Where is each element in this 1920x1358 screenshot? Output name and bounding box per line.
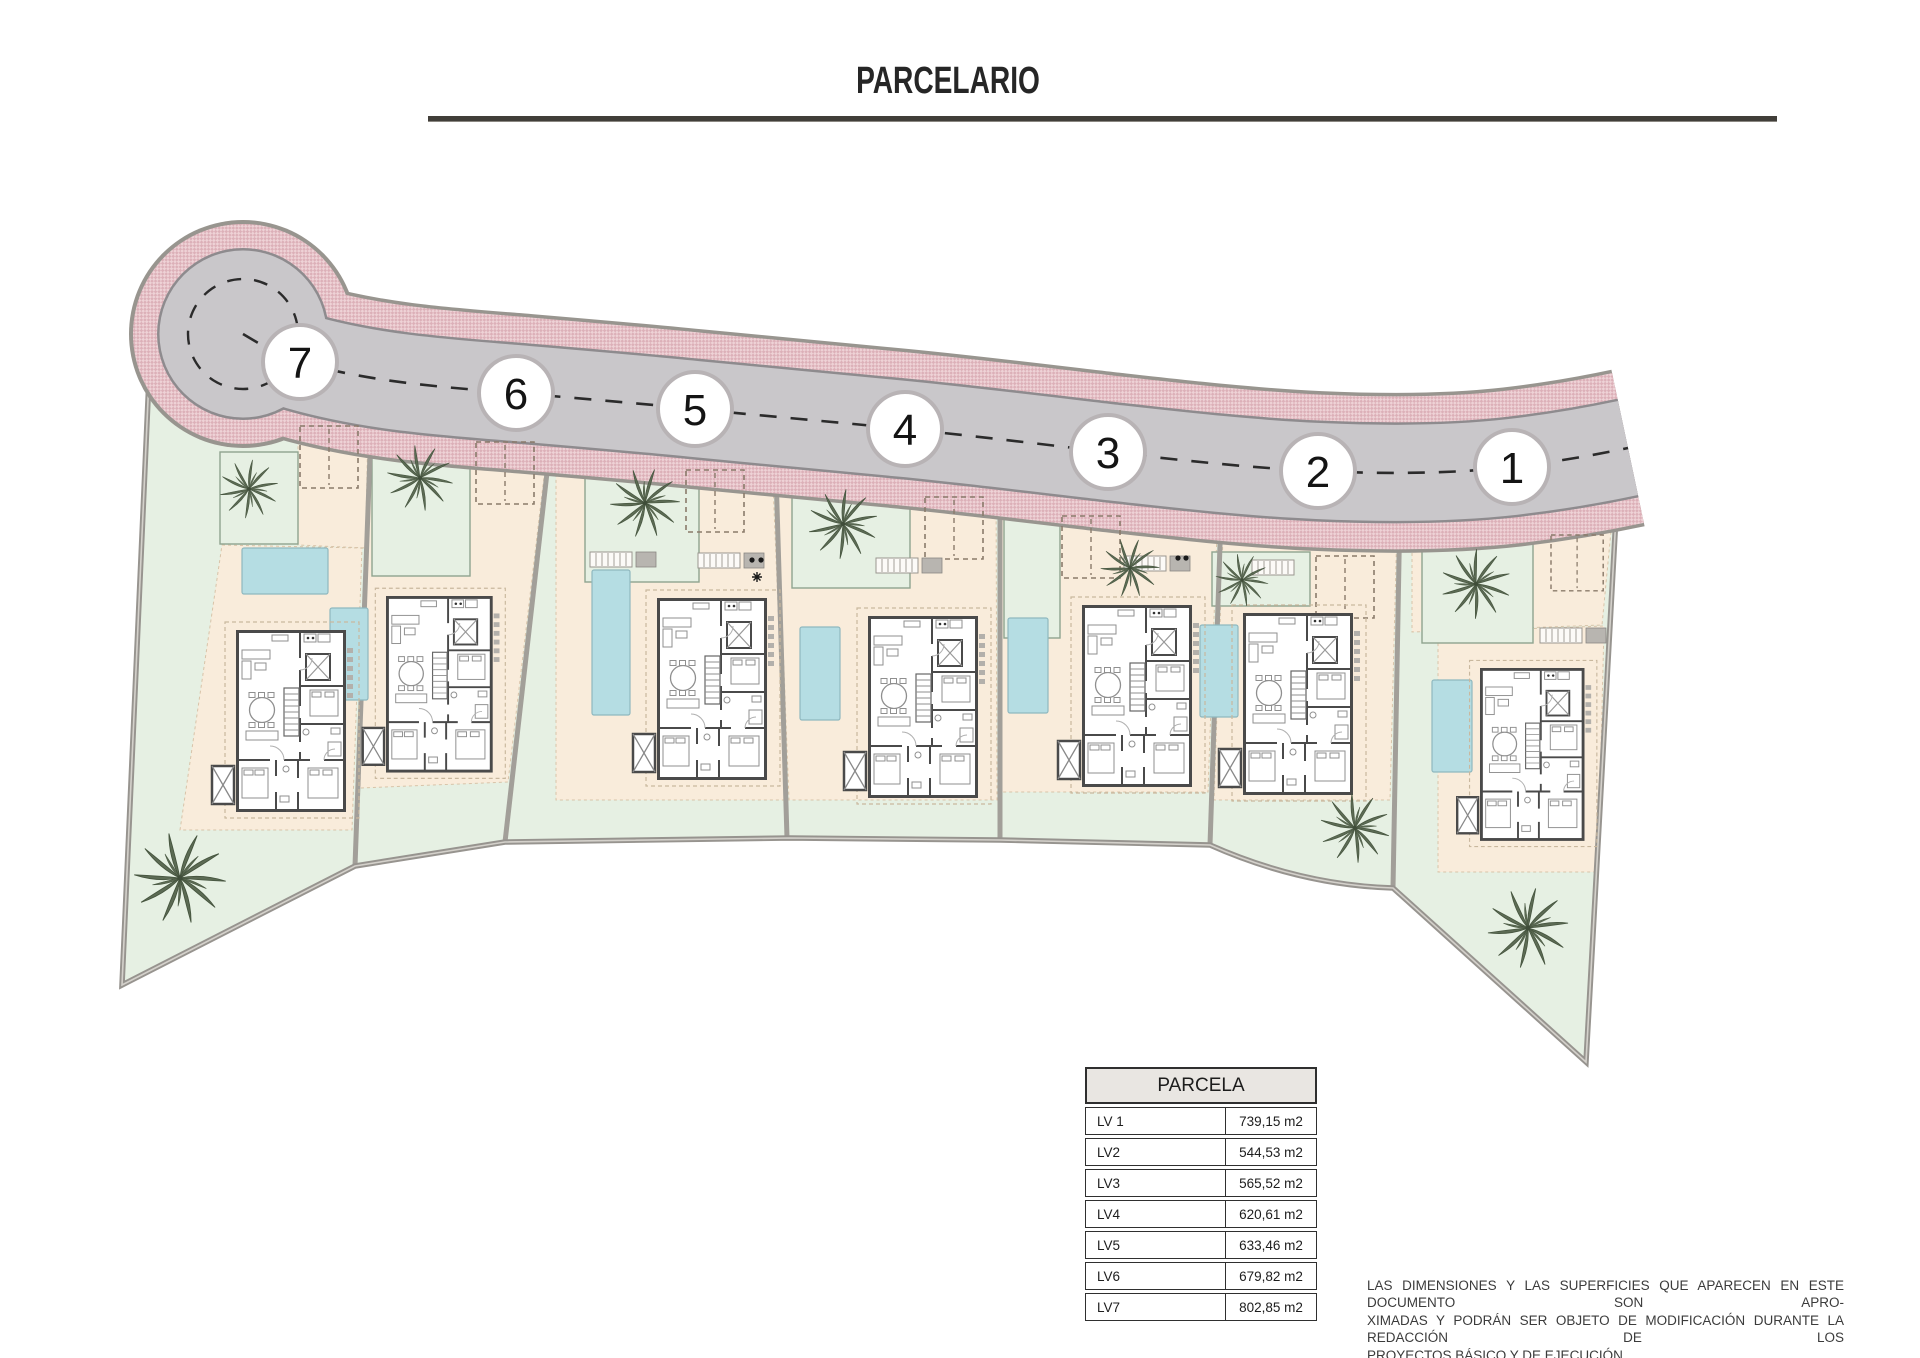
svg-text:5: 5	[683, 386, 707, 435]
pool	[1008, 618, 1048, 713]
parcel-table-header: PARCELA	[1085, 1067, 1317, 1104]
table-row: LV3 565,52 m2	[1085, 1169, 1317, 1197]
table-row: LV4 620,61 m2	[1085, 1200, 1317, 1228]
parcel-label: LV6	[1086, 1263, 1226, 1289]
disclaimer-note: LAS DIMENSIONES Y LAS SUPERFICIES QUE AP…	[1367, 1277, 1844, 1358]
svg-text:2: 2	[1306, 448, 1330, 497]
pool	[592, 570, 630, 715]
pool	[1432, 680, 1472, 772]
plot-marker-1: 1	[1475, 430, 1549, 504]
table-row: LV7 802,85 m2	[1085, 1293, 1317, 1321]
svg-text:1: 1	[1500, 444, 1524, 493]
plot-marker-2: 2	[1281, 434, 1355, 508]
parcel-area: 739,15 m2	[1226, 1108, 1316, 1134]
parcel-area: 679,82 m2	[1226, 1263, 1316, 1289]
svg-text:6: 6	[504, 370, 528, 419]
table-row: LV2 544,53 m2	[1085, 1138, 1317, 1166]
parcel-label: LV 1	[1086, 1108, 1226, 1134]
plot-marker-4: 4	[868, 392, 942, 466]
disclaimer-line: PROYECTOS BÁSICO Y DE EJECUCIÓN	[1367, 1347, 1844, 1358]
parcel-area: 620,61 m2	[1226, 1201, 1316, 1227]
parcel-label: LV2	[1086, 1139, 1226, 1165]
parcel-area: 544,53 m2	[1226, 1139, 1316, 1165]
svg-text:3: 3	[1096, 429, 1120, 478]
plot-marker-7: 7	[263, 325, 337, 399]
parcel-label: LV4	[1086, 1201, 1226, 1227]
table-row: LV5 633,46 m2	[1085, 1231, 1317, 1259]
disclaimer-line: XIMADAS Y PODRÁN SER OBJETO DE MODIFICAC…	[1367, 1312, 1844, 1347]
svg-text:7: 7	[288, 339, 312, 388]
plot-marker-5: 5	[658, 372, 732, 446]
parcel-area: 802,85 m2	[1226, 1294, 1316, 1320]
plot-marker-3: 3	[1071, 415, 1145, 489]
parcel-label: LV5	[1086, 1232, 1226, 1258]
table-row: LV6 679,82 m2	[1085, 1262, 1317, 1290]
pool	[800, 627, 840, 720]
disclaimer-line: LAS DIMENSIONES Y LAS SUPERFICIES QUE AP…	[1367, 1277, 1844, 1312]
plot-marker-6: 6	[479, 356, 553, 430]
parcel-area: 565,52 m2	[1226, 1170, 1316, 1196]
svg-text:4: 4	[893, 406, 917, 455]
table-row: LV 1 739,15 m2	[1085, 1107, 1317, 1135]
parcel-label: LV7	[1086, 1294, 1226, 1320]
parcel-table: PARCELA LV 1 739,15 m2 LV2 544,53 m2 LV3…	[1085, 1067, 1317, 1321]
pool	[242, 548, 328, 594]
parcel-area: 633,46 m2	[1226, 1232, 1316, 1258]
parcel-label: LV3	[1086, 1170, 1226, 1196]
site-plan-drawing: 7 6 5 4 3 2 1	[0, 0, 1920, 1358]
site-plan-page: PARCELARIO	[0, 0, 1920, 1358]
